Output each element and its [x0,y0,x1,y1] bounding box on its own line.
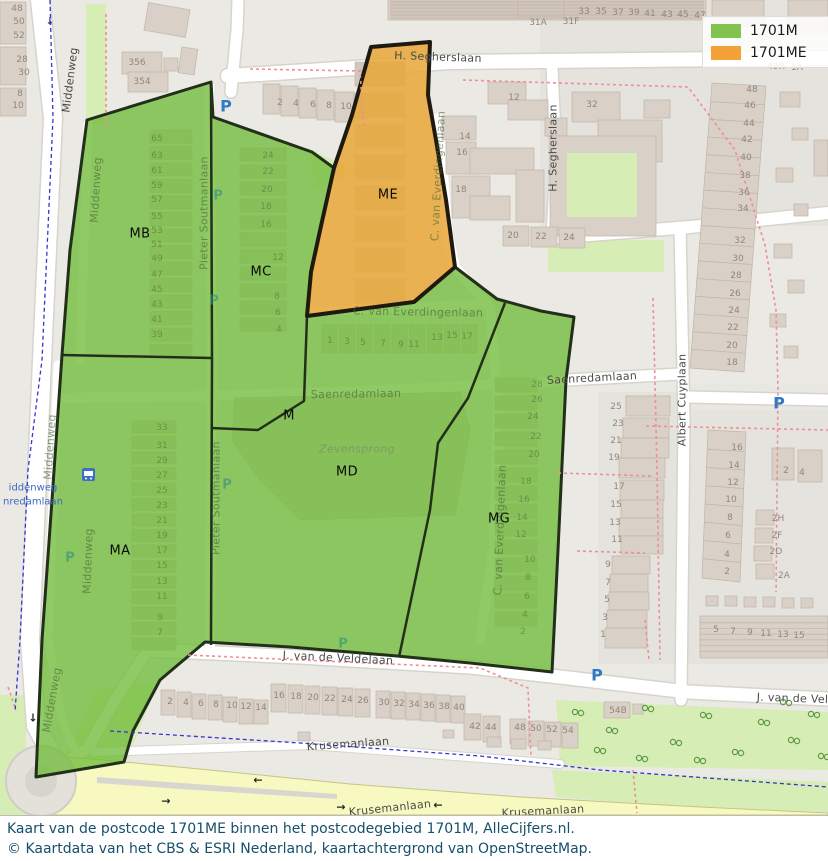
legend-label: 1701M [750,23,798,39]
legend-swatch-1701M [711,24,741,38]
caption-line1: Kaart van de postcode 1701ME binnen het … [7,819,828,839]
legend-label: 1701ME [750,45,807,61]
legend-row: 1701ME [711,45,823,61]
map-legend: 1701M1701ME [702,16,828,68]
legend-swatch-1701ME [711,46,741,60]
caption-line2: © Kaartdata van het CBS & ESRI Nederland… [7,839,828,859]
legend-row: 1701M [711,23,823,39]
caption: Kaart van de postcode 1701ME binnen het … [0,815,828,861]
map-image [0,0,828,815]
allecijfers-postcode-map-page: MBMCMEMMDMAMGMiddenwegMiddenwegMiddenweg… [0,0,828,861]
map-canvas: MBMCMEMMDMAMGMiddenwegMiddenwegMiddenweg… [0,0,828,815]
bus-stop-icon [82,468,95,481]
